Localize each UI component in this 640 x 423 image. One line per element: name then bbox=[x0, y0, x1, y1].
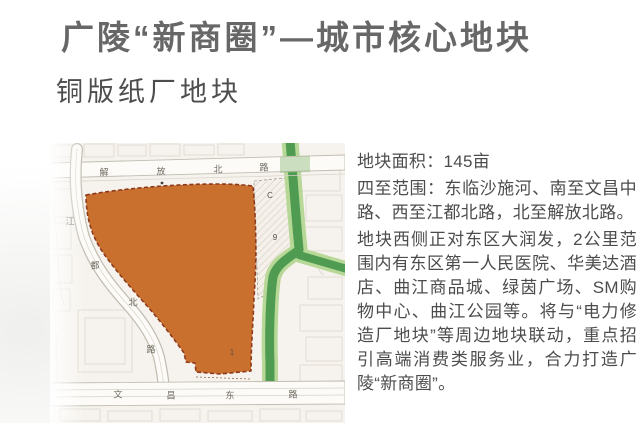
page-subtitle: 铜版纸厂地块 bbox=[56, 70, 242, 109]
road-label-char: 放 bbox=[156, 165, 165, 176]
road-label-char: 路 bbox=[259, 161, 268, 172]
road-wenchang-east bbox=[50, 381, 345, 406]
info-boundary-line: 四至范围：东临沙施河、南至文昌中路、西至江都北路，北至解放北路。 bbox=[357, 177, 637, 225]
road-label-char: 北 bbox=[213, 164, 222, 174]
sub-parcel-label-c: C bbox=[267, 191, 273, 200]
road-label-char: 文 bbox=[113, 388, 122, 399]
parcel-number-label: 1 bbox=[230, 348, 235, 357]
road-label-char: 解 bbox=[99, 166, 108, 177]
river-bridge-tint bbox=[280, 156, 310, 173]
road-label-char: 路 bbox=[146, 343, 155, 354]
road-label-char: 都 bbox=[90, 260, 99, 270]
road-label-char: 北 bbox=[128, 297, 137, 307]
parcel-map-svg: 解 放 北 路 江 都 北 路 文 昌 东 路 C 9 1 bbox=[50, 143, 345, 423]
slide: 广陵“新商圈”—城市核心地块 铜版纸厂地块 bbox=[0, 0, 640, 423]
page-title: 广陵“新商圈”—城市核心地块 bbox=[61, 11, 532, 59]
info-area-line: 地块面积：145亩 bbox=[357, 150, 637, 174]
parcel-map: 解 放 北 路 江 都 北 路 文 昌 东 路 C 9 1 bbox=[50, 143, 345, 423]
info-panel: 地块面积：145亩 四至范围：东临沙施河、南至文昌中路、西至江都北路，北至解放北… bbox=[357, 150, 637, 399]
road-label-char: 昌 bbox=[166, 390, 175, 400]
map-edge-fade bbox=[50, 143, 84, 423]
road-label-char: 东 bbox=[225, 389, 234, 400]
map-survey-dot bbox=[161, 182, 164, 185]
info-description-line: 地块西侧正对东区大润发，2公里范围内有东区第一人民医院、华美达酒店、曲江商品城、… bbox=[357, 228, 637, 396]
road-label-char: 路 bbox=[288, 388, 297, 399]
sub-parcel-label-9: 9 bbox=[273, 233, 278, 242]
